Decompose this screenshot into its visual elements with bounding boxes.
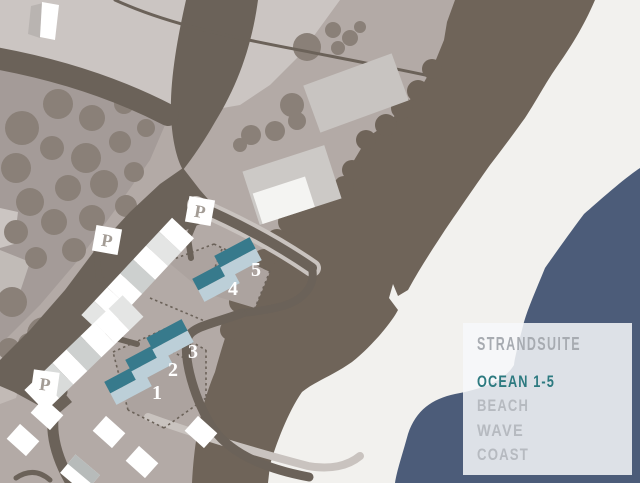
legend: STRANDSUITE OCEAN 1-5 BEACH WAVE COAST bbox=[463, 323, 632, 475]
site-map-page: 1 2 3 4 5 P P P STRANDSUITE OCEAN 1-5 BE… bbox=[0, 0, 640, 483]
parking-sign-3: P bbox=[30, 369, 59, 398]
building-number-4: 4 bbox=[228, 278, 238, 300]
legend-item-coast: COAST bbox=[477, 445, 529, 464]
building-north-white bbox=[28, 2, 59, 40]
parking-sign-2: P bbox=[185, 196, 215, 226]
site-map: 1 2 3 4 5 P P P STRANDSUITE OCEAN 1-5 BE… bbox=[0, 0, 640, 483]
building-number-1: 1 bbox=[152, 382, 162, 404]
building-number-5: 5 bbox=[251, 259, 261, 281]
legend-item-beach: BEACH bbox=[477, 396, 529, 415]
building-number-3: 3 bbox=[188, 341, 198, 363]
legend-title: STRANDSUITE bbox=[477, 334, 581, 354]
legend-item-ocean: OCEAN 1-5 bbox=[477, 372, 555, 391]
parking-sign-1: P bbox=[92, 225, 122, 255]
building-number-2: 2 bbox=[168, 359, 178, 381]
legend-item-wave: WAVE bbox=[477, 421, 524, 440]
